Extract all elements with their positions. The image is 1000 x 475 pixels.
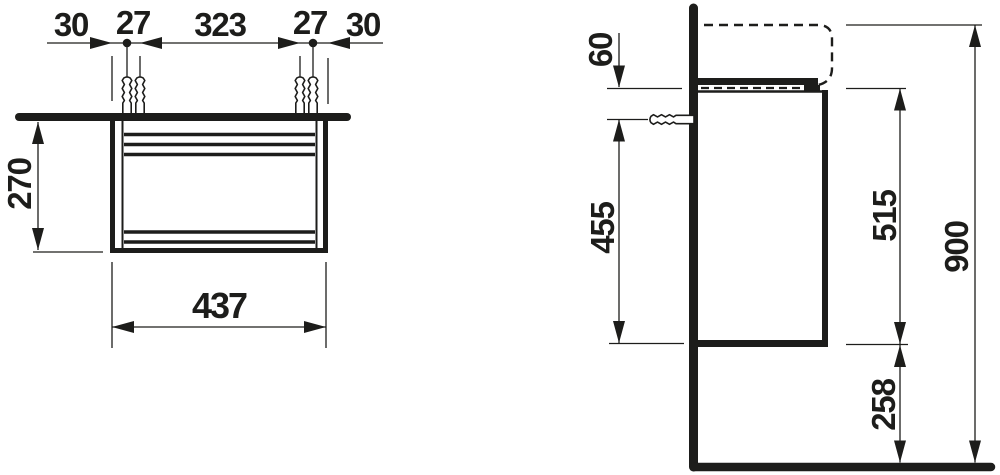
arrowhead-up xyxy=(894,89,906,111)
arrowhead-right xyxy=(304,321,326,333)
countertop-front xyxy=(15,113,351,121)
cabinet-bottom xyxy=(110,248,328,253)
side-floor-clearance-dimension: 258 xyxy=(846,344,908,463)
wall-plug-icon xyxy=(135,77,145,114)
dim-label-cabinet-height: 515 xyxy=(866,189,903,241)
dim-label-offset-left: 30 xyxy=(54,6,88,43)
dim-label-plug-gap-left: 27 xyxy=(116,4,150,41)
countertop-side xyxy=(698,78,820,91)
side-view: 60 455 515 258 xyxy=(582,8,991,467)
cabinet-side-right xyxy=(323,120,328,253)
arrowhead-down xyxy=(969,441,981,463)
arrowhead-down xyxy=(894,322,906,344)
dim-label-offset-right: 30 xyxy=(346,6,380,43)
installation-drawing-svg: 30 27 323 27 30 xyxy=(0,0,1000,475)
dim-label-screw-to-bottom: 455 xyxy=(584,201,621,253)
cabinet-bottom-edge xyxy=(698,340,828,347)
arrowhead-down xyxy=(894,441,906,463)
arrowhead-down xyxy=(32,228,44,250)
countertop-edge-lip xyxy=(804,85,820,91)
arrowhead-left xyxy=(112,321,134,333)
side-cabinet-height-dimension: 515 xyxy=(846,89,906,345)
technical-drawing: 30 27 323 27 30 xyxy=(0,0,1000,475)
dim-label-height-below-top: 270 xyxy=(1,158,38,209)
dim-label-top-to-screw: 60 xyxy=(582,33,619,67)
wall-plug-icon xyxy=(295,77,305,114)
wall-plug-icon xyxy=(308,77,318,114)
arrowhead-right xyxy=(90,37,112,49)
wall-plug-icon xyxy=(122,77,132,114)
arrowhead-up xyxy=(894,345,906,367)
dim-label-total-height: 900 xyxy=(938,221,975,272)
side-top-offset-dimension: 60 xyxy=(582,33,682,89)
dim-label-cabinet-width: 437 xyxy=(192,285,247,326)
dim-label-floor-clearance: 258 xyxy=(865,378,902,430)
front-view: 30 27 323 27 30 xyxy=(1,4,383,348)
cabinet-side xyxy=(698,90,828,347)
arrowhead-down xyxy=(613,321,625,343)
cabinet-front-edge xyxy=(822,90,828,345)
wall-screw-icon xyxy=(650,115,694,125)
front-width-dimension: 437 xyxy=(112,262,326,348)
front-height-dimension: 270 xyxy=(1,122,103,252)
cabinet-front xyxy=(110,120,328,253)
arrowhead-up xyxy=(969,25,981,47)
washbasin-dashed-outline xyxy=(704,25,832,85)
cabinet-side-left xyxy=(110,120,115,253)
arrowhead-down xyxy=(613,66,625,88)
side-screw-to-bottom-dimension: 455 xyxy=(584,120,684,344)
dim-label-plug-gap-right: 27 xyxy=(293,4,327,41)
arrowhead-up xyxy=(32,122,44,144)
dim-label-plug-span: 323 xyxy=(194,6,246,43)
front-top-dimension: 30 27 323 27 30 xyxy=(47,4,383,104)
wall-plug-icons xyxy=(122,77,318,114)
countertop-slab xyxy=(698,78,818,85)
